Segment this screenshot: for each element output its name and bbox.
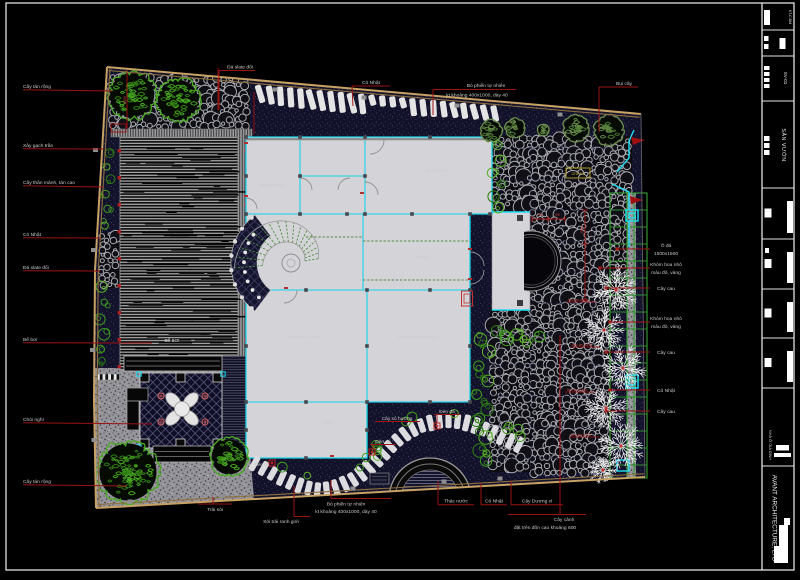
svg-text:Cây tán rộng: Cây tán rộng: [23, 479, 51, 485]
svg-text:GHẾ ĐÁ: GHẾ ĐÁ: [572, 171, 586, 176]
svg-text:750: 750: [537, 213, 543, 217]
svg-text:Khóm hoa nhỏ: Khóm hoa nhỏ: [650, 261, 682, 268]
svg-text:Đá slate đổi: Đá slate đổi: [227, 64, 253, 71]
svg-text:Thác nước: Thác nước: [444, 499, 468, 505]
svg-text:SV-01: SV-01: [783, 72, 788, 85]
svg-text:kt khoảng 400x1000, dày 40: kt khoảng 400x1000, dày 40: [315, 509, 377, 515]
svg-text:Bụi cây: Bụi cây: [616, 81, 633, 87]
svg-text:PHÒNG KHÁCH: PHÒNG KHÁCH: [289, 335, 320, 340]
svg-text:đặt trên đôn cao khoảng 600: đặt trên đôn cao khoảng 600: [514, 525, 577, 531]
svg-text:Bó phiến tự nhiên: Bó phiến tự nhiên: [327, 502, 366, 508]
svg-text:màu đỏ, vàng: màu đỏ, vàng: [651, 323, 681, 330]
svg-text:Cỏ Nhật: Cỏ Nhật: [362, 79, 381, 86]
svg-text:màu đỏ, vàng: màu đỏ, vàng: [651, 269, 681, 276]
svg-text:Cây cảnh: Cây cảnh: [554, 517, 575, 523]
svg-text:BỂ BƠI: BỂ BƠI: [165, 338, 180, 343]
svg-text:Chòi nghỉ: Chòi nghỉ: [23, 416, 45, 423]
svg-text:Neu lan 8-400: Neu lan 8-400: [572, 343, 592, 347]
svg-text:Đá slate đổi: Đá slate đổi: [23, 264, 49, 271]
svg-text:Cây cau: Cây cau: [657, 286, 675, 292]
svg-text:Ô đá: Ô đá: [661, 242, 672, 249]
svg-text:Cỏ Nhật: Cỏ Nhật: [485, 498, 504, 505]
svg-text:Cỏ Nhật: Cỏ Nhật: [23, 231, 42, 238]
svg-text:Cây tán rộng: Cây tán rộng: [23, 84, 51, 90]
svg-text:750: 750: [554, 213, 560, 217]
svg-text:Cây cau: Cây cau: [657, 409, 675, 415]
svg-text:PHÒNG SINH HOẠT: PHÒNG SINH HOẠT: [398, 335, 438, 340]
svg-text:Đèn đá: Đèn đá: [255, 462, 270, 467]
svg-text:Cây cau: Cây cau: [657, 350, 675, 356]
svg-text:Neu lan 8-400: Neu lan 8-400: [567, 388, 587, 392]
svg-text:4800: 4800: [123, 96, 127, 104]
svg-text:Khóm hoa nhỏ: Khóm hoa nhỏ: [650, 315, 682, 322]
svg-text:NHÀ Ở GIA ĐÌNH: NHÀ Ở GIA ĐÌNH: [768, 430, 773, 460]
svg-text:KT-C 884: KT-C 884: [788, 10, 792, 24]
svg-text:4500: 4500: [580, 226, 584, 234]
svg-text:SÂN VƯỜN: SÂN VƯỜN: [780, 128, 787, 161]
svg-text:Bó phiến tự nhiên: Bó phiến tự nhiên: [467, 83, 506, 89]
svg-text:Xây gạch trần: Xây gạch trần: [23, 143, 53, 149]
svg-text:Cây thân mảnh, tán cao: Cây thân mảnh, tán cao: [23, 180, 75, 186]
svg-text:Neu lan 8-400: Neu lan 8-400: [571, 433, 591, 437]
svg-text:Cỏ Nhật: Cỏ Nhật: [657, 387, 676, 394]
svg-text:Sỏi trải ranh giới: Sỏi trải ranh giới: [263, 518, 299, 525]
svg-text:1500x1500: 1500x1500: [654, 251, 678, 257]
svg-text:BẾP: BẾP: [324, 420, 333, 425]
svg-text:Trải sỏi: Trải sỏi: [207, 506, 223, 513]
svg-text:GA RA ÔTÔ: GA RA ÔTÔ: [426, 168, 450, 173]
svg-text:Bể bơi: Bể bơi: [23, 336, 37, 343]
svg-text:SẢNH: SẢNH: [417, 255, 429, 260]
svg-text:kt khoảng 400x1000, dày 40: kt khoảng 400x1000, dày 40: [446, 93, 508, 99]
svg-text:PHÒNG VIỆC: PHÒNG VIỆC: [259, 183, 285, 188]
svg-text:Cây Dương xỉ: Cây Dương xỉ: [522, 498, 553, 505]
